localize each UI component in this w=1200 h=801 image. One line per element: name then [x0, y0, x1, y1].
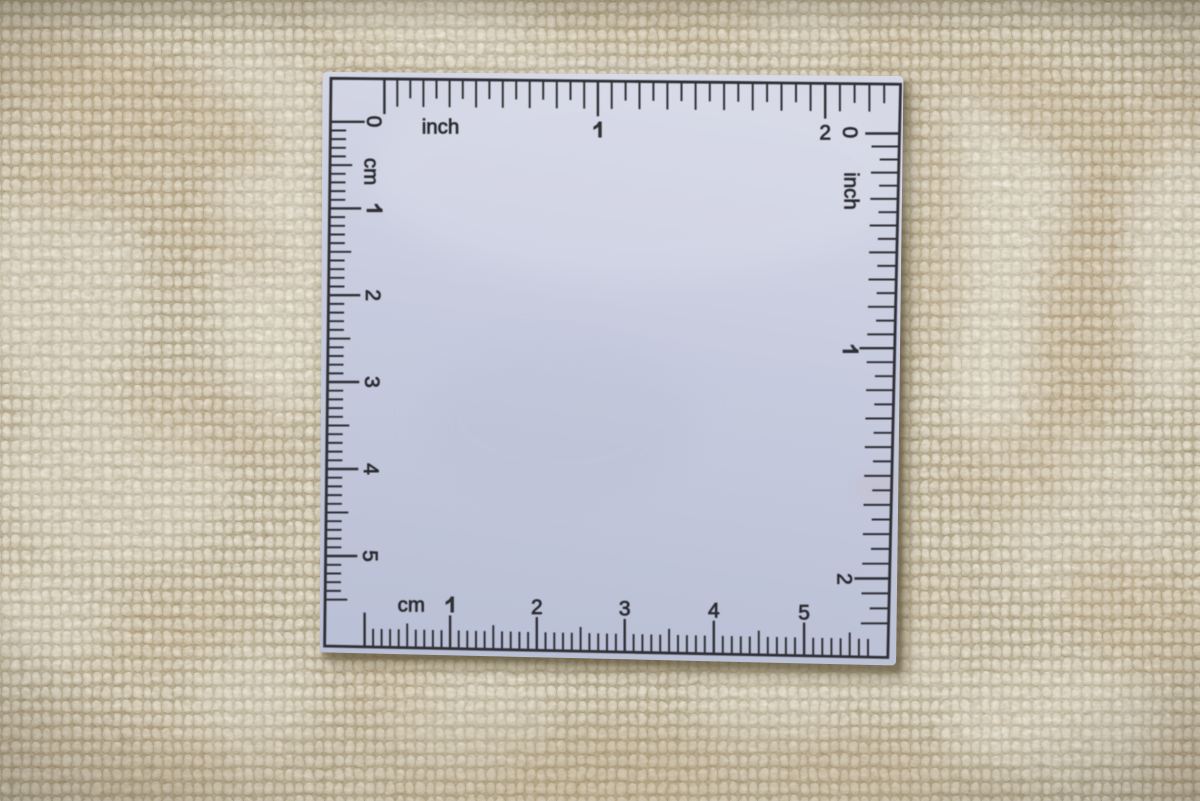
- svg-text:4: 4: [359, 463, 382, 475]
- svg-text:inch: inch: [422, 116, 460, 139]
- svg-text:0: 0: [838, 127, 861, 139]
- svg-text:cm: cm: [360, 158, 383, 185]
- svg-text:cm: cm: [398, 593, 425, 616]
- svg-text:inch: inch: [840, 172, 863, 210]
- svg-text:0: 0: [362, 116, 385, 128]
- svg-text:2: 2: [833, 573, 856, 585]
- svg-text:2: 2: [531, 596, 543, 619]
- svg-text:5: 5: [358, 550, 381, 562]
- svg-text:2: 2: [361, 289, 384, 301]
- svg-text:5: 5: [798, 601, 810, 624]
- svg-text:3: 3: [360, 376, 383, 388]
- svg-text:2: 2: [819, 121, 831, 144]
- svg-text:4: 4: [708, 599, 720, 622]
- svg-text:3: 3: [619, 598, 631, 621]
